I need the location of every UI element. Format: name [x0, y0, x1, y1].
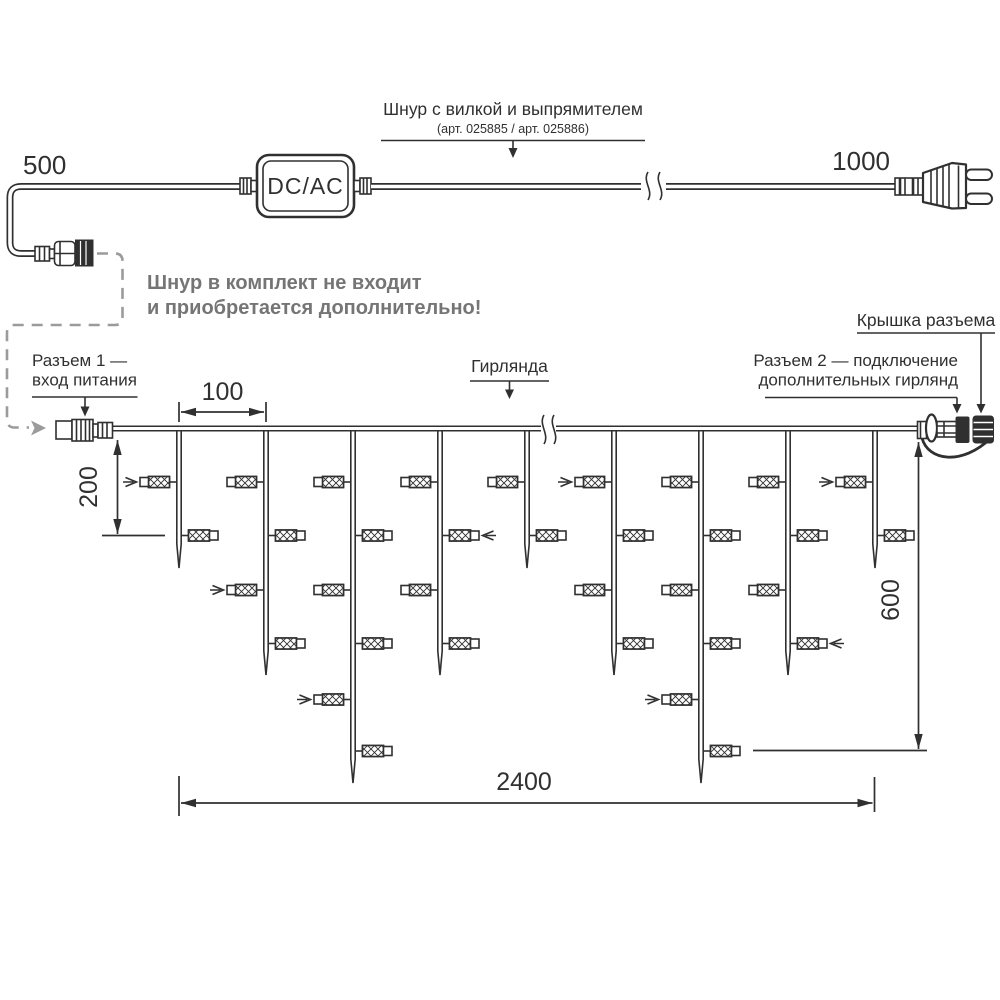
bulb-body [798, 638, 819, 649]
note-line1: Шнур в комплект не входит [147, 272, 422, 294]
led-bulb [355, 638, 392, 649]
garland-drop [488, 430, 566, 568]
bulb-body [410, 585, 431, 596]
bulb-cap [749, 478, 758, 487]
bulb-cap [575, 478, 584, 487]
down-arrow-icon [81, 407, 90, 417]
right-arrow-icon [249, 408, 264, 416]
led-bulb [297, 694, 351, 705]
dc-ac-label: DC/AC [267, 173, 344, 199]
drop-wire [612, 430, 616, 675]
bulb-cap [401, 478, 410, 487]
led-bulb [790, 638, 844, 649]
direction-arrow-icon [123, 478, 137, 487]
bulb-body [711, 530, 732, 541]
cap-label: Крышка разъема [857, 310, 996, 330]
garland-connector-1 [56, 420, 113, 442]
break-symbol [646, 172, 649, 200]
direction-arrow-icon [831, 639, 845, 648]
dim-1000-label: 1000 [832, 146, 890, 176]
bulb-cap [732, 531, 741, 540]
dimensions: 100 200 600 2400 [75, 378, 927, 816]
note-line2: и приобретается дополнительно! [147, 297, 481, 319]
led-bulb [616, 638, 653, 649]
led-bulb [314, 585, 351, 596]
bulb-cap [297, 531, 306, 540]
direction-arrow-icon [210, 586, 224, 595]
connector-2-end [956, 417, 970, 444]
led-bulb [529, 530, 566, 541]
break-symbol [552, 415, 555, 444]
connector1-label-line2: вход питания [32, 371, 137, 390]
bulb-body [323, 477, 344, 488]
led-bulb [877, 530, 914, 541]
bulb-body [537, 530, 558, 541]
diagram-canvas: 500 DC/AC [0, 0, 1000, 1000]
led-bulb [749, 477, 786, 488]
garland-drop [645, 430, 740, 783]
bulb-cap [314, 478, 323, 487]
connector2-label-line1: Разъем 2 — подключение [753, 351, 958, 370]
direction-arrow-icon [645, 695, 659, 704]
garland-drop [819, 430, 914, 568]
plug-prong [966, 170, 992, 181]
down-arrow-icon [953, 404, 962, 414]
drop-wire [699, 430, 703, 783]
dim-200-label: 200 [75, 466, 103, 508]
garland-label: Гирлянда [471, 356, 548, 376]
seal-ring [926, 415, 937, 442]
led-bulb [558, 477, 612, 488]
direction-arrow-icon [558, 478, 572, 487]
direction-arrow-icon [483, 531, 497, 540]
garland-drop [297, 430, 392, 783]
garland-drop [401, 430, 496, 675]
led-bulb [662, 477, 699, 488]
break-symbol [658, 172, 661, 200]
bulb-cap [384, 747, 393, 756]
bulb-cap [662, 586, 671, 595]
garland-drop [210, 430, 305, 675]
drop-wire [525, 430, 529, 568]
dc-ac-converter: DC/AC [240, 155, 371, 217]
bulb-cap [488, 478, 497, 487]
bulb-cap [384, 639, 393, 648]
cord-title: Шнур с вилкой и выпрямителем [383, 99, 643, 119]
bulb-cap [471, 639, 480, 648]
bulb-cap [645, 639, 654, 648]
led-bulb [703, 638, 740, 649]
led-bulb [401, 585, 438, 596]
cord-subtitle: (арт. 025885 / арт. 025886) [437, 122, 589, 136]
bulb-body [276, 530, 297, 541]
direction-arrow-icon [819, 478, 833, 487]
bulb-body [671, 477, 692, 488]
bulb-body [323, 585, 344, 596]
led-bulb [227, 477, 264, 488]
bulb-cap [210, 531, 219, 540]
bulb-cap [384, 531, 393, 540]
led-bulb [749, 585, 786, 596]
bulb-body [671, 694, 692, 705]
bulb-body [758, 585, 779, 596]
gray-arrow-icon [31, 421, 46, 436]
drop-wire [786, 430, 790, 675]
garland-assembly: Разъем 1 — вход питания Гирлянда Разъем … [32, 310, 996, 783]
bulb-cap [401, 586, 410, 595]
bulb-body [584, 477, 605, 488]
bulb-cap [836, 478, 845, 487]
bulb-body [584, 585, 605, 596]
led-bulb [703, 530, 740, 541]
down-arrow-icon [977, 404, 986, 414]
bulb-cap [645, 531, 654, 540]
drop-wire [873, 430, 877, 568]
led-bulb [268, 530, 305, 541]
bulb-body [711, 638, 732, 649]
left-arrow-icon [181, 799, 196, 807]
bulb-body [189, 530, 210, 541]
bulb-body [497, 477, 518, 488]
bulb-body [276, 638, 297, 649]
break-symbol [542, 415, 545, 444]
garland-drop [749, 430, 844, 675]
mains-plug [895, 163, 992, 209]
bulb-cap [732, 747, 741, 756]
dim-600-label: 600 [877, 579, 905, 621]
dim-100-label: 100 [202, 378, 244, 406]
bulb-body [450, 638, 471, 649]
bulb-body [671, 585, 692, 596]
bulb-body [885, 530, 906, 541]
bulb-cap [575, 586, 584, 595]
led-bulb [616, 530, 653, 541]
garland-drop [123, 430, 218, 568]
connector2-label-line2: дополнительных гирлянд [758, 371, 958, 390]
garland-drop [558, 430, 653, 675]
bulb-body [624, 638, 645, 649]
led-bulb [268, 638, 305, 649]
bulb-body [363, 638, 384, 649]
plug-prong [966, 194, 992, 205]
right-arrow-icon [858, 799, 873, 807]
bulb-body [798, 530, 819, 541]
drop-wire [438, 430, 442, 675]
led-bulb [210, 585, 264, 596]
drop-wire [177, 430, 181, 568]
bulb-cap [906, 531, 915, 540]
led-bulb [355, 746, 392, 757]
led-bulb [355, 530, 392, 541]
connector1-label-line1: Разъем 1 — [32, 351, 127, 370]
bulb-body [624, 530, 645, 541]
bulb-body [363, 746, 384, 757]
bulb-body [236, 477, 257, 488]
led-bulb [123, 477, 177, 488]
bulb-body [711, 746, 732, 757]
bulb-cap [314, 586, 323, 595]
bulb-cap [662, 695, 671, 704]
led-bulb [442, 530, 496, 541]
up-arrow-icon [113, 440, 121, 455]
bulb-cap [140, 478, 149, 487]
bulb-body [363, 530, 384, 541]
bulb-cap [749, 586, 758, 595]
led-bulb [442, 638, 479, 649]
cord-left [10, 187, 240, 254]
bulb-body [758, 477, 779, 488]
bulb-body [149, 477, 170, 488]
icicle-garland-diagram: 500 DC/AC [0, 0, 1000, 1000]
direction-arrow-icon [297, 695, 311, 704]
bulb-body [450, 530, 471, 541]
bulb-body [410, 477, 431, 488]
led-bulb [401, 477, 438, 488]
dim-2400-label: 2400 [496, 768, 552, 796]
led-bulb [819, 477, 873, 488]
garland-drops [123, 430, 914, 783]
led-bulb [314, 477, 351, 488]
bulb-cap [819, 639, 828, 648]
down-arrow-icon [113, 519, 121, 534]
garland-connector-2 [918, 415, 995, 458]
down-arrow-icon [505, 390, 514, 400]
down-arrow-icon [509, 148, 518, 158]
bulb-body [845, 477, 866, 488]
bulb-body [236, 585, 257, 596]
led-bulb [662, 585, 699, 596]
dim-500-label: 500 [23, 150, 66, 180]
bulb-cap [297, 639, 306, 648]
drop-wire [351, 430, 355, 783]
led-bulb [488, 477, 525, 488]
led-bulb [645, 694, 699, 705]
led-bulb [575, 585, 612, 596]
down-arrow-icon [914, 734, 922, 749]
bulb-cap [314, 695, 323, 704]
bulb-cap [732, 639, 741, 648]
cord-connector [35, 240, 94, 267]
led-bulb [181, 530, 218, 541]
bulb-cap [819, 531, 828, 540]
drop-wire [264, 430, 268, 675]
led-bulb [703, 746, 740, 757]
bulb-cap [558, 531, 567, 540]
bulb-body [323, 694, 344, 705]
bulb-cap [227, 586, 236, 595]
bulb-cap [662, 478, 671, 487]
bulb-cap [471, 531, 480, 540]
not-included-dashed-path [7, 254, 123, 428]
led-bulb [790, 530, 827, 541]
bulb-cap [227, 478, 236, 487]
left-arrow-icon [181, 408, 196, 416]
up-arrow-icon [914, 442, 922, 457]
